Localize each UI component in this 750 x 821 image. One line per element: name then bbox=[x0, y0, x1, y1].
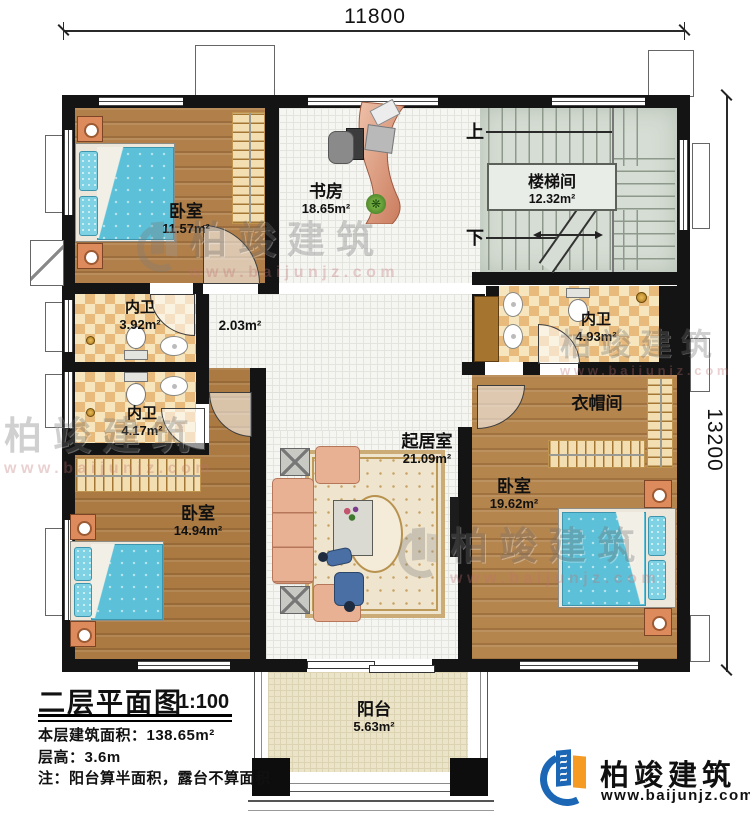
plant-icon: ❋ bbox=[366, 194, 386, 214]
hallway-area-label: 2.03m² bbox=[219, 318, 262, 333]
room-label-balcony: 阳台 5.63m² bbox=[353, 700, 394, 734]
nightstand bbox=[77, 243, 103, 269]
person-figure-head bbox=[318, 552, 328, 562]
room-name: 内卫 bbox=[575, 312, 616, 329]
room-label-bedroom-tl: 卧室 11.57m² bbox=[162, 202, 210, 236]
window bbox=[552, 97, 645, 106]
window bbox=[99, 97, 183, 106]
nightstand bbox=[70, 621, 96, 647]
room-area: 5.63m² bbox=[353, 719, 394, 734]
room-name: 书房 bbox=[302, 182, 350, 201]
room-label-living: 起居室 21.09m² bbox=[402, 432, 453, 466]
wall-living-right bbox=[458, 427, 472, 659]
room-name: 衣帽间 bbox=[572, 394, 623, 413]
stairs-up-label: 上 bbox=[466, 118, 484, 144]
dimension-line-top bbox=[63, 30, 685, 32]
stairs-walk-line bbox=[486, 237, 564, 239]
sofa bbox=[272, 478, 314, 584]
balcony-pillar bbox=[450, 758, 488, 796]
room-name: 楼梯间 bbox=[528, 168, 576, 192]
sliding-door-panel bbox=[307, 661, 375, 669]
nightstand bbox=[77, 116, 103, 142]
end-table bbox=[280, 448, 310, 476]
dimension-line-right bbox=[726, 95, 728, 672]
towel-hook-icon bbox=[86, 336, 95, 345]
stairs-landing-treads bbox=[613, 158, 675, 266]
wall-bath-divider bbox=[75, 362, 196, 372]
room-name: 卧室 bbox=[162, 202, 210, 221]
room-area: 4.93m² bbox=[575, 329, 616, 344]
nightstand bbox=[644, 480, 672, 508]
wall-bath-right bbox=[196, 294, 209, 404]
toilet-tank bbox=[124, 350, 148, 360]
room-area: 19.62m² bbox=[490, 496, 538, 511]
brand-website: www.baijunjz.com bbox=[601, 787, 750, 804]
wardrobe bbox=[75, 458, 201, 492]
room-label-bedroom-br: 卧室 19.62m² bbox=[490, 477, 538, 511]
window bbox=[679, 140, 688, 230]
wall-interior bbox=[578, 362, 677, 375]
floor-plan-canvas: 11800 13200 bbox=[0, 0, 750, 821]
room-area: 3.92m² bbox=[119, 317, 160, 332]
wall-living-left bbox=[250, 368, 266, 659]
room-name: 起居室 bbox=[402, 432, 453, 451]
stairwell-label-box: 楼梯间 12.32m² bbox=[487, 163, 617, 211]
wall-bedroom-study bbox=[265, 108, 279, 283]
stairs-arrow-line bbox=[540, 234, 596, 236]
dimension-width: 11800 bbox=[344, 5, 406, 29]
wall-interior bbox=[258, 283, 279, 294]
room-label-cloakroom: 衣帽间 bbox=[572, 394, 623, 413]
dimension-end bbox=[63, 22, 64, 40]
flowers-icon bbox=[340, 504, 364, 522]
wall-interior bbox=[193, 283, 203, 294]
arrow-right-icon bbox=[595, 231, 603, 239]
room-name: 阳台 bbox=[353, 700, 394, 719]
title-underline bbox=[38, 714, 232, 722]
sink bbox=[160, 336, 188, 356]
person-figure-head bbox=[344, 601, 355, 612]
balcony-step-line bbox=[248, 800, 494, 802]
stairs-walk-line bbox=[486, 131, 612, 133]
room-name: 卧室 bbox=[174, 504, 222, 523]
room-area: 12.32m² bbox=[529, 192, 576, 206]
pillow bbox=[79, 151, 98, 191]
room-area: 4.17m² bbox=[121, 423, 162, 438]
wall-stair-bottom bbox=[472, 272, 677, 285]
room-label-bath3: 内卫 4.93m² bbox=[575, 312, 616, 344]
wall-interior bbox=[62, 283, 150, 294]
sink bbox=[503, 292, 523, 317]
balcony-step-line bbox=[248, 810, 494, 811]
pillow bbox=[74, 547, 92, 581]
room-name: 内卫 bbox=[119, 300, 160, 317]
window-sill bbox=[692, 143, 710, 229]
pillow bbox=[79, 196, 98, 236]
room-area: 2.03m² bbox=[219, 318, 262, 333]
armchair bbox=[315, 446, 360, 484]
room-label-bedroom-bl: 卧室 14.94m² bbox=[174, 504, 222, 538]
pillow bbox=[648, 516, 666, 556]
stairs-down-label: 下 bbox=[466, 224, 484, 250]
wardrobe bbox=[647, 378, 673, 468]
nightstand bbox=[644, 608, 672, 636]
bed-sheet bbox=[97, 147, 172, 238]
floor-area-line: 本层建筑面积：138.65m² bbox=[38, 724, 215, 745]
sink bbox=[160, 376, 188, 396]
nightstand bbox=[70, 514, 96, 540]
arrow-left-icon bbox=[533, 231, 541, 239]
tv bbox=[450, 497, 459, 557]
room-area: 21.09m² bbox=[402, 451, 453, 466]
window bbox=[64, 372, 73, 428]
note-line: 注：阳台算半面积，露台不算面积 bbox=[38, 767, 271, 788]
toilet bbox=[124, 372, 148, 406]
bed-sheet bbox=[562, 512, 644, 604]
pillow bbox=[74, 583, 92, 617]
flue-box bbox=[648, 50, 694, 97]
wall-recess bbox=[30, 240, 64, 286]
room-area: 14.94m² bbox=[174, 523, 222, 538]
end-table bbox=[280, 586, 310, 614]
room-name: 卧室 bbox=[490, 477, 538, 496]
office-chair bbox=[328, 131, 354, 164]
toilet-bowl bbox=[126, 383, 146, 406]
toilet-tank bbox=[124, 372, 148, 382]
sink bbox=[503, 324, 523, 349]
toilet-tank bbox=[566, 288, 590, 298]
pillow bbox=[648, 560, 666, 600]
wardrobe bbox=[232, 112, 265, 224]
window bbox=[64, 300, 73, 352]
window-sill bbox=[690, 615, 710, 662]
room-area: 11.57m² bbox=[162, 221, 210, 236]
cabinet bbox=[474, 296, 499, 362]
window-sill bbox=[690, 338, 710, 392]
plan-scale: 1:100 bbox=[178, 691, 229, 714]
brand-logo-icon bbox=[540, 748, 594, 808]
dimension-end bbox=[684, 22, 685, 40]
room-label-bath2: 内卫 4.17m² bbox=[121, 406, 162, 438]
window bbox=[64, 130, 73, 215]
wardrobe bbox=[548, 440, 645, 468]
dimension-height: 13200 bbox=[702, 408, 726, 471]
flue-box bbox=[195, 45, 275, 99]
towel-ring-icon bbox=[636, 292, 647, 303]
room-name: 内卫 bbox=[121, 406, 162, 423]
floor-height-line: 层高：3.6m bbox=[38, 746, 121, 767]
wall-interior bbox=[462, 362, 477, 375]
room-area: 18.65m² bbox=[302, 201, 350, 216]
desk-return bbox=[364, 124, 395, 154]
bed-sheet bbox=[91, 544, 161, 618]
towel-hook-icon bbox=[86, 408, 95, 417]
room-label-bath1: 内卫 3.92m² bbox=[119, 300, 160, 332]
window bbox=[520, 661, 638, 670]
wall-pier bbox=[659, 286, 677, 362]
sliding-door-panel bbox=[369, 665, 435, 673]
room-label-study: 书房 18.65m² bbox=[302, 182, 350, 216]
window bbox=[138, 661, 230, 670]
